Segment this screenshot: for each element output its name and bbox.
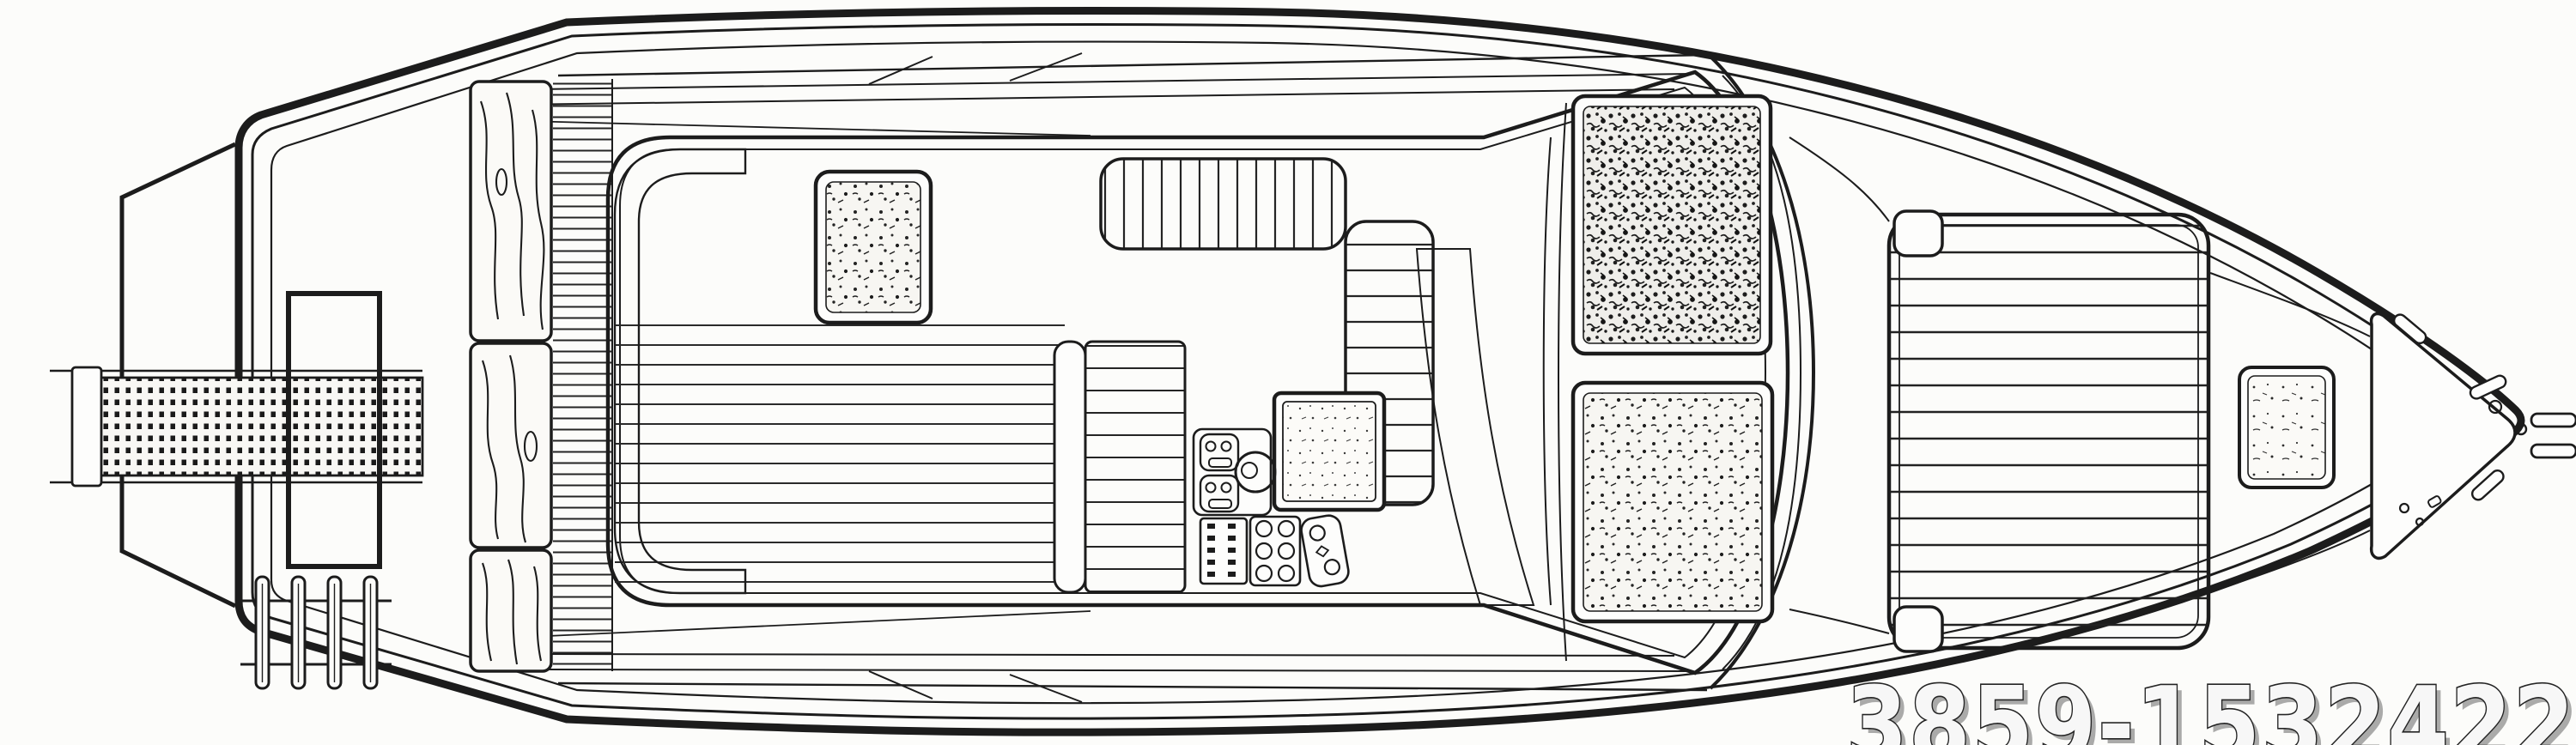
gangway-end-cap [72, 367, 101, 486]
bench-backrest [1054, 342, 1085, 592]
anchor-roller [2531, 414, 2576, 427]
teak-step-panels [471, 82, 551, 671]
anchor-roller [2531, 445, 2576, 457]
settee-top-section [1101, 159, 1346, 249]
deck-hatch [816, 172, 931, 323]
switch-panel [1200, 518, 1247, 584]
bridge-deck-planking [615, 324, 1065, 592]
boat-deck-plan-figure: 3859-1532422 3859-1532422 [0, 0, 2576, 745]
boarding-gangway [50, 367, 422, 486]
deck-plan-drawing: 3859-1532422 3859-1532422 [0, 0, 2576, 745]
pad-corner-tab [1894, 211, 1942, 256]
gauge-cluster [1250, 517, 1300, 585]
chaise-bench [1054, 342, 1185, 592]
pad-corner-tab [1894, 607, 1942, 651]
watermark-text: 3859-1532422 [1846, 666, 2576, 745]
helm-seat-port [1200, 434, 1238, 470]
foredeck-hatch [2239, 367, 2334, 488]
helm-seat-starboard [1200, 475, 1238, 512]
bench-cushion [1085, 342, 1185, 592]
bow-sun-pad [1889, 211, 2208, 651]
watermark: 3859-1532422 3859-1532422 [1846, 666, 2576, 745]
aft-deck-planking [553, 79, 613, 671]
gangway-tread-plank [77, 378, 422, 475]
